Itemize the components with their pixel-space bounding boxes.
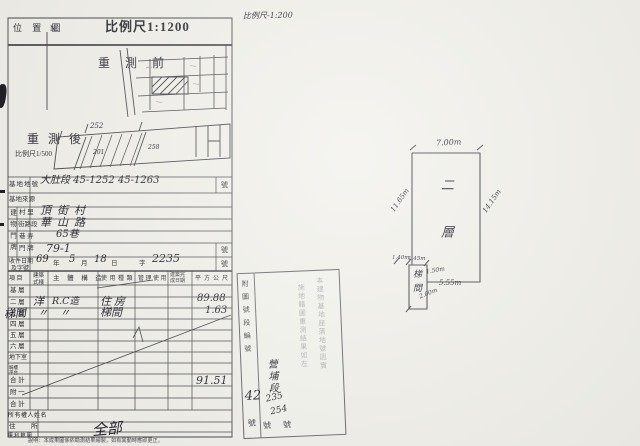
stamp-divider — [254, 273, 262, 437]
residence-label-left: 住 — [9, 424, 16, 431]
north-label: N — [50, 25, 56, 33]
basement-label: 地下室 — [9, 355, 27, 361]
floor-3-area: 1.63 — [205, 306, 227, 316]
floor-5-label: 五 層 — [10, 333, 25, 340]
receipt-month-unit: 月 — [81, 261, 88, 268]
door-unit: 號 — [221, 247, 228, 254]
floor-ground-label: 基 層 — [10, 288, 25, 295]
village-value: 頂街村 — [40, 205, 91, 216]
post-resurvey-label: 重 測 後 — [27, 133, 84, 145]
owner-name-label: 所有權人姓名 — [8, 413, 47, 419]
receipt-month: 5 — [69, 255, 75, 265]
col-item: 項 目 — [9, 276, 23, 282]
col-completion-date: 建築完成日期 — [170, 273, 187, 285]
receipt-day: 18 — [94, 255, 107, 265]
stamp-units: 號 號 — [263, 421, 296, 430]
street-label: 街路段 — [18, 222, 38, 229]
dim-201: 201 — [93, 150, 104, 156]
street-value: 華山路 — [40, 217, 91, 228]
stamp-text-col2: 施地籍圖重測結果如左 — [297, 283, 308, 368]
receipt-prefix: 字 — [139, 261, 146, 268]
village-label: 村 里 — [19, 210, 34, 217]
address-group-label: 建物門牌 — [8, 209, 15, 255]
total-area: 91.51 — [196, 375, 228, 386]
annex-label: 附 一 — [10, 390, 25, 397]
col-structure: 主 體 構 造 — [53, 276, 105, 283]
parcel-number-value: 大肚段 45-1252 45-1263 — [40, 176, 159, 186]
receipt-year-unit: 年 — [53, 261, 60, 268]
receipt-label-line2: 及字號 — [11, 266, 29, 272]
stamp-attach-number: 42 — [244, 389, 261, 403]
receipt-day-unit: 日 — [111, 261, 118, 268]
total2-label: 合 計 — [10, 402, 25, 409]
post-resurvey-scale: 比例尺1/500 — [15, 151, 52, 158]
floor-4-label: 四 層 — [10, 322, 25, 329]
receipt-year: 69 — [36, 255, 49, 265]
floor-3-overwrite: 梯間 — [4, 307, 27, 320]
resurvey-stamp: 附圖號段編號 42 號 營埔段 235 254 號 號 本建物基地座落地號因實 … — [237, 269, 347, 439]
scale-note: 比例尺-1:200 — [243, 12, 293, 21]
door-label: 門 牌 — [19, 246, 34, 253]
lane-label: 巷 弄 — [19, 234, 34, 241]
receipt-number: 2235 — [152, 253, 180, 264]
rights-scope-value: 全部 — [91, 421, 122, 439]
col-manage: 管理使用 — [138, 276, 168, 282]
stamp-parcel-1: 235 — [265, 392, 284, 404]
sketch-dim-b: 1.45m — [408, 257, 425, 263]
floor-2-area: 89.88 — [197, 294, 226, 304]
receipt-unit: 號 — [221, 261, 228, 268]
col-style: 建築式樣 — [33, 273, 46, 286]
floor-2-structure: R.C造 — [52, 297, 79, 307]
scan-artifact — [0, 223, 4, 226]
residence-label-right: 所 — [31, 424, 38, 431]
parcel-number-label: 基地地號 — [9, 182, 39, 189]
parcel-number-unit: 號 — [221, 182, 228, 189]
arcade-label: 騎樓平台 — [9, 365, 20, 376]
floor-3-structure: 〃 — [60, 309, 70, 319]
stamp-parcel-2: 254 — [270, 405, 289, 417]
scan-artifact — [0, 190, 5, 193]
sketch-floor-label: 二層 — [439, 178, 452, 272]
lane-value: 65巷 — [56, 230, 79, 240]
stamp-attach-unit: 號 — [248, 420, 256, 428]
stamp-section-value: 營埔段 — [265, 359, 276, 395]
scanned-survey-document: 比例尺-1:200 位 置 圖 比例尺1:1200 N 重 測 前 重 測 後 … — [0, 0, 640, 446]
col-area: 平方公尺 — [195, 276, 231, 282]
pre-resurvey-label: 重 測 前 — [98, 57, 170, 69]
form-title: 位 置 圖 — [13, 24, 65, 33]
dim-258: 258 — [148, 145, 159, 151]
col-use: 使用種類 — [101, 276, 135, 282]
receipt-label-line1: 收件日期 — [9, 259, 33, 265]
stamp-attach-label: 附圖號段編號 — [241, 280, 251, 358]
map-scale: 比例尺1:1200 — [105, 20, 190, 33]
total-label: 合 計 — [10, 378, 25, 385]
floor-3-use: 梯間 — [100, 307, 122, 318]
sketch-dim-a: 1.40m — [392, 256, 409, 262]
floor-6-label: 六 層 — [10, 344, 25, 351]
floor-3-style: 〃 — [38, 309, 48, 319]
floor-2-style: 洋 — [33, 296, 44, 307]
land-source-label: 基地來源 — [9, 197, 35, 204]
door-value: 79-1 — [46, 243, 71, 254]
sketch-dim-d: 5.55m — [439, 280, 461, 287]
stamp-text-col1: 本建物基地座落地號因實 — [316, 277, 327, 371]
sketch-dim-top: 7.00m — [436, 138, 462, 147]
footnote: 說明：本成果圖係依勘測結果繪製，如有異動時應即更正。 — [28, 439, 163, 444]
dim-252: 252 — [90, 123, 103, 130]
